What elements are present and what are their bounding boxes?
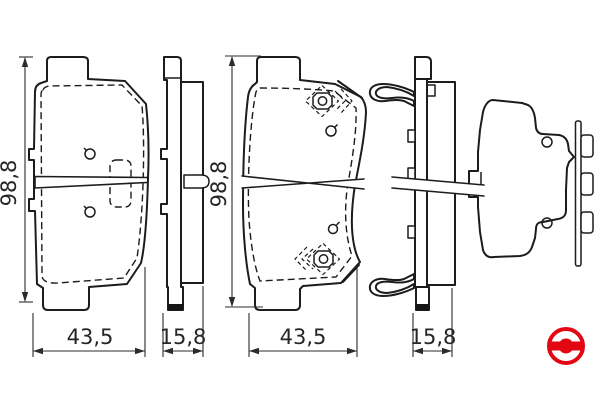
thickness-label: 15,8 — [160, 325, 207, 349]
abutment-mark — [168, 304, 183, 310]
backplate-edge-strip — [576, 121, 594, 266]
retaining-spring-top — [370, 84, 414, 106]
height-dimension-left: 98,8 — [0, 57, 33, 302]
retaining-spring-bottom — [370, 274, 414, 296]
bosch-armature-logo — [549, 329, 583, 363]
pad-back-view — [469, 100, 593, 266]
brake-pad-technical-drawing: 98,8 98,8 43,5 15,8 43,5 — [0, 0, 600, 400]
height-label: 98,8 — [207, 161, 231, 208]
drawing-canvas: 98,8 98,8 43,5 15,8 43,5 — [0, 0, 600, 400]
height-label: 98,8 — [0, 160, 21, 207]
abutment-mark — [416, 304, 429, 310]
pad-edge-view-left — [161, 57, 209, 310]
shim-tab — [184, 175, 209, 188]
thickness-label: 15,8 — [410, 325, 457, 349]
width-label: 43,5 — [67, 325, 114, 349]
width-label: 43,5 — [280, 325, 327, 349]
